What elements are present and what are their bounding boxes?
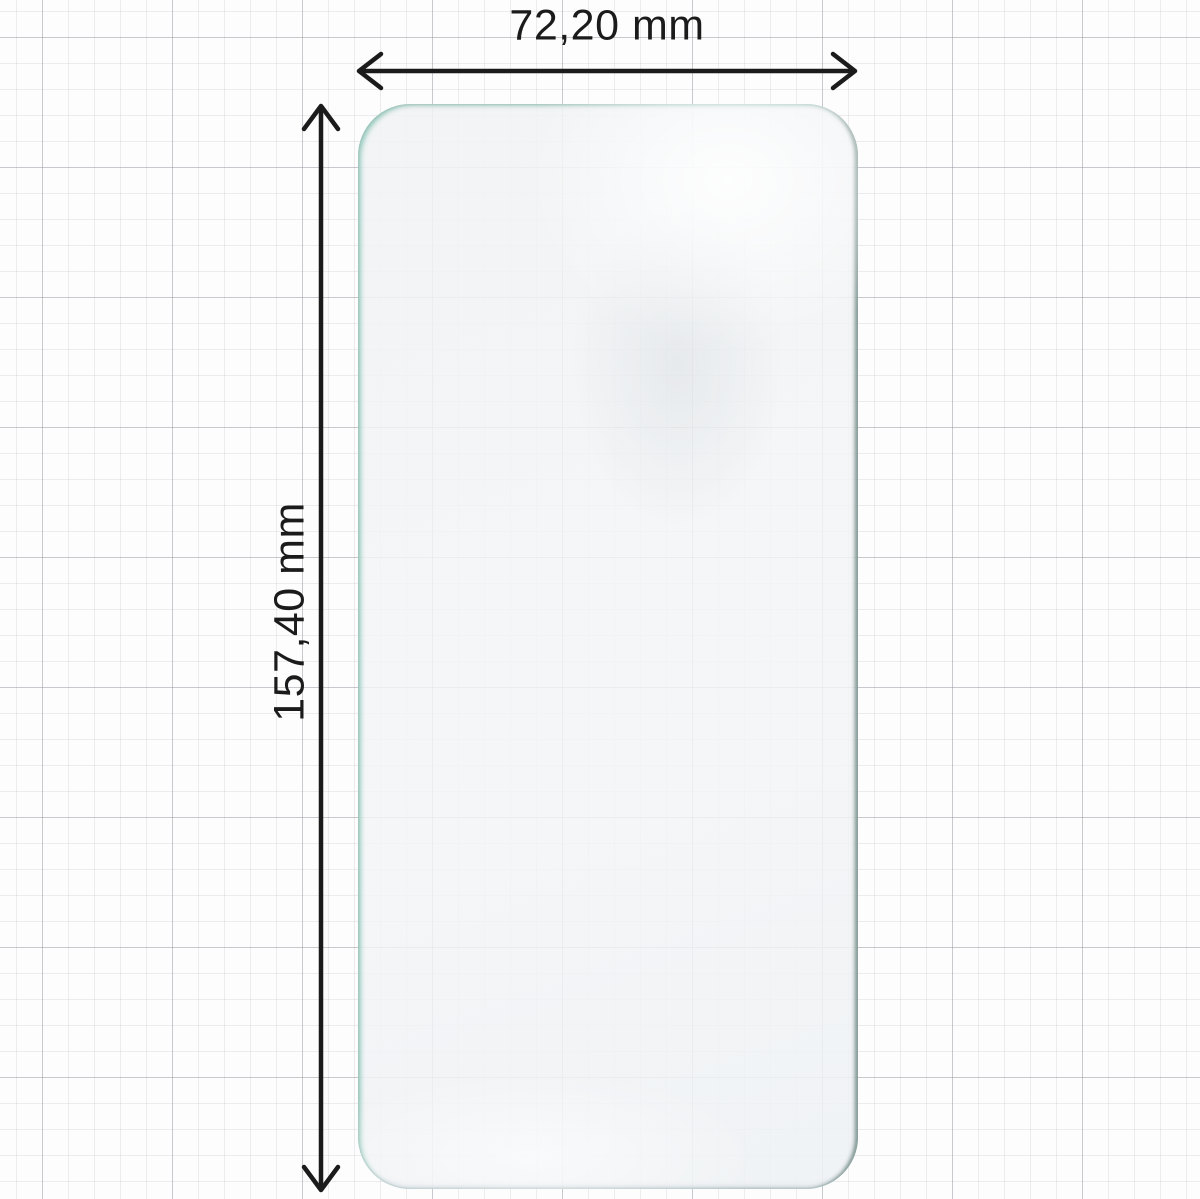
- product-dimensions-diagram: 72,20 mm 157,40 mm: [0, 0, 1200, 1199]
- height-dimension-label: 157,40 mm: [266, 502, 315, 722]
- width-dimension-label: 72,20 mm: [509, 2, 704, 51]
- film-reflection-sheen: [358, 104, 858, 1189]
- screen-protector-film: [358, 104, 858, 1189]
